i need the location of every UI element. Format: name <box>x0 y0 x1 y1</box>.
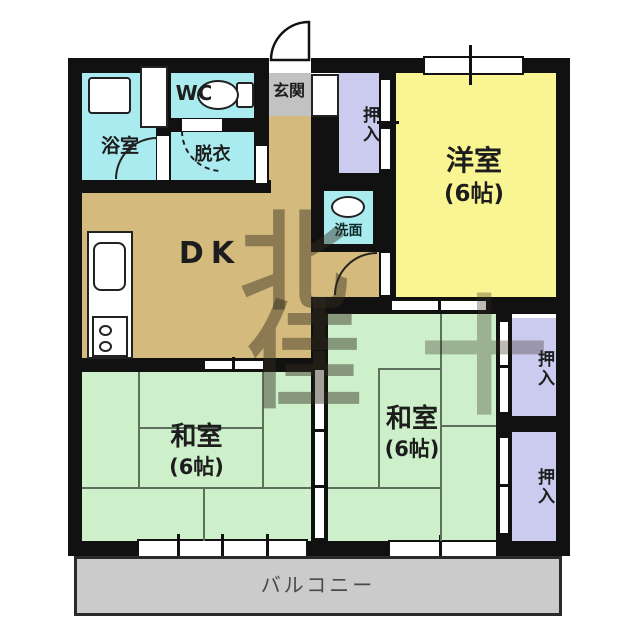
label-japanese-right-size: (6帖) <box>328 438 496 460</box>
western-room-door-arc <box>335 253 377 295</box>
label-closet-top: 押入 <box>341 88 377 162</box>
door-arcs <box>0 0 640 640</box>
label-western-room: 洋室 <box>396 146 552 175</box>
label-wc: WC <box>174 83 214 104</box>
label-western-room-size: (6帖) <box>396 182 552 206</box>
label-entrance: 玄関 <box>267 83 311 100</box>
label-washstand: 洗面 <box>322 224 375 239</box>
label-closet-right-bottom: 押入 <box>516 452 552 522</box>
floor-plan: DK 洋室 (6帖) 和室 (6帖) 和室 (6帖) 浴室 WC 脱衣 玄関 洗… <box>0 0 640 640</box>
entrance-door-arc <box>271 22 309 60</box>
label-japanese-right: 和室 <box>328 406 496 433</box>
label-dk: DK <box>150 238 270 270</box>
balcony: バルコニー <box>74 556 562 616</box>
label-balcony: バルコニー <box>77 575 559 596</box>
label-japanese-left: 和室 <box>82 424 311 451</box>
label-bathroom: 浴室 <box>84 137 156 157</box>
label-dressing: 脱衣 <box>171 146 254 165</box>
label-japanese-left-size: (6帖) <box>82 456 311 478</box>
label-closet-right-top: 押入 <box>516 334 552 404</box>
